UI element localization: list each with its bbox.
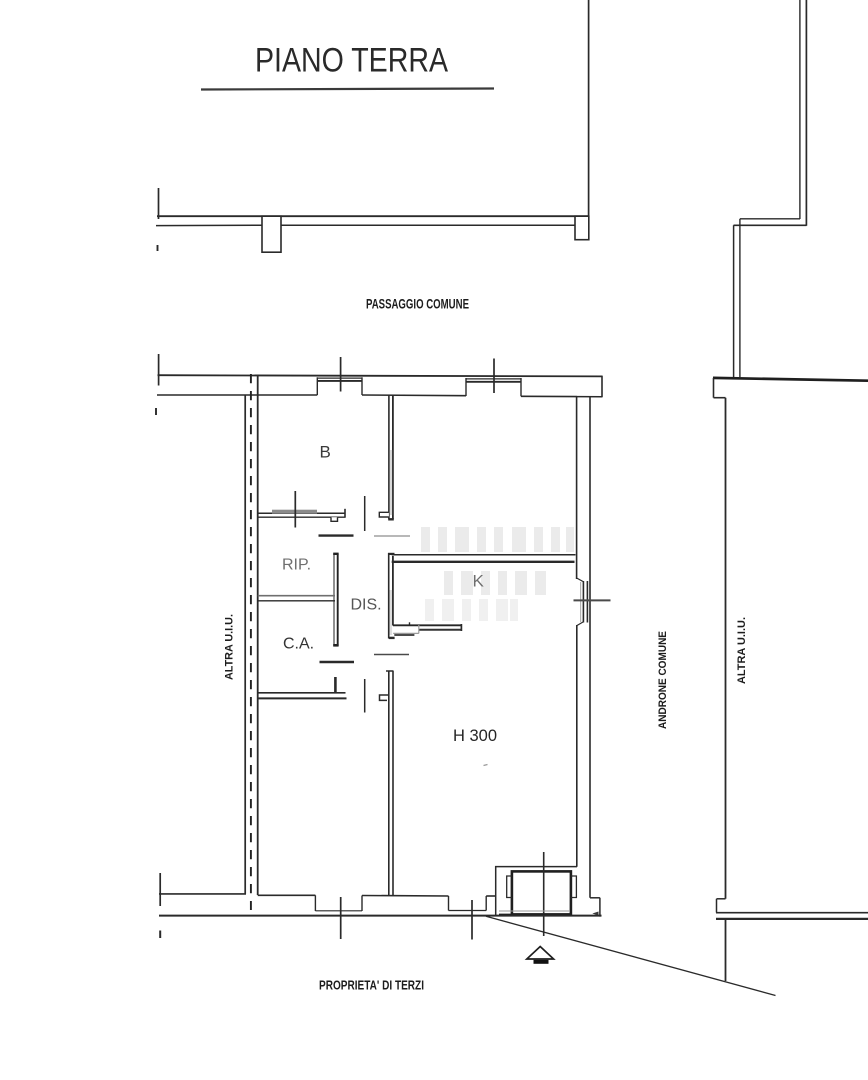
svg-text:RIP.: RIP. bbox=[282, 557, 311, 574]
svg-text:H 300: H 300 bbox=[453, 727, 497, 745]
svg-text:DIS.: DIS. bbox=[351, 597, 382, 614]
svg-text:B: B bbox=[320, 443, 331, 462]
svg-text:PROPRIETA' DI TERZI: PROPRIETA' DI TERZI bbox=[319, 978, 424, 993]
svg-text:ANDRONE COMUNE: ANDRONE COMUNE bbox=[657, 631, 669, 729]
svg-text:C.A.: C.A. bbox=[283, 636, 314, 653]
svg-text:ALTRA U.I.U.: ALTRA U.I.U. bbox=[223, 614, 235, 680]
svg-text:ALTRA U.I.U.: ALTRA U.I.U. bbox=[736, 617, 748, 684]
svg-text:PASSAGGIO COMUNE: PASSAGGIO COMUNE bbox=[366, 296, 469, 312]
svg-text:PIANO TERRA: PIANO TERRA bbox=[255, 42, 448, 80]
svg-text:K: K bbox=[473, 572, 485, 591]
